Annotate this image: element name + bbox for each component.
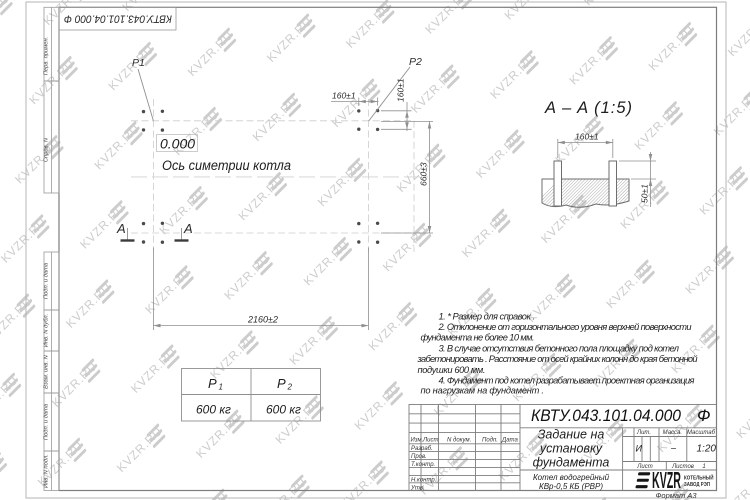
svg-text:Справ. N: Справ. N <box>43 137 49 162</box>
svg-text:KVZR: KVZR <box>652 467 681 493</box>
svg-text:Задание на: Задание на <box>538 428 605 442</box>
svg-text:КОТЕЛЬНЫЙ: КОТЕЛЬНЫЙ <box>684 474 714 482</box>
svg-text:Инв. N дубл.: Инв. N дубл. <box>43 314 49 348</box>
svg-text:Н.контр.: Н.контр. <box>411 478 436 484</box>
svg-text:160±1: 160±1 <box>332 91 356 101</box>
svg-text:3. В случае отсутствия бетонн: 3. В случае отсутствия бетонного пола пл… <box>439 343 680 353</box>
svg-text:Лист: Лист <box>422 438 438 444</box>
svg-text:ЗАВОД РЭП: ЗАВОД РЭП <box>684 482 710 488</box>
svg-text:Масштаб: Масштаб <box>687 430 716 436</box>
svg-text:KVZR.RU: KVZR.RU <box>725 8 750 59</box>
svg-text:KVZR.RU: KVZR.RU <box>12 135 63 186</box>
svg-text:600 кг: 600 кг <box>266 403 301 417</box>
svg-text:P: P <box>208 376 217 391</box>
svg-text:Перв. примен.: Перв. примен. <box>43 37 49 76</box>
svg-text:P1: P1 <box>132 57 145 69</box>
svg-text:50±1: 50±1 <box>640 184 650 203</box>
svg-text:фундамента: фундамента <box>533 456 610 470</box>
svg-text:1: 1 <box>219 383 223 392</box>
svg-text:–: – <box>670 443 677 453</box>
svg-text:по нагрузкам на фундамент .: по нагрузкам на фундамент . <box>421 386 545 396</box>
svg-text:600 кг: 600 кг <box>196 403 231 417</box>
svg-text:подушки 600 мм.: подушки 600 мм. <box>418 365 486 375</box>
svg-text:Ось симетрии котла: Ось симетрии котла <box>162 158 291 173</box>
svg-text:Утв.: Утв. <box>410 486 425 492</box>
svg-text:160±1: 160±1 <box>575 132 599 142</box>
svg-text:КВТУ.043.101.04.000 Ф: КВТУ.043.101.04.000 Ф <box>64 13 172 25</box>
svg-text:Разраб.: Разраб. <box>411 446 433 452</box>
svg-text:0.000: 0.000 <box>160 136 195 152</box>
svg-text:A – A (1:5): A – A (1:5) <box>544 99 633 117</box>
svg-text:Подп. и дата: Подп. и дата <box>43 262 49 299</box>
svg-text:1. * Размер для справок .: 1. * Размер для справок . <box>439 311 536 321</box>
svg-text:A: A <box>116 221 126 236</box>
svg-text:P2: P2 <box>409 56 422 68</box>
svg-text:Т.контр.: Т.контр. <box>411 462 435 468</box>
svg-text:КВТУ.043.101.04.000: КВТУ.043.101.04.000 <box>531 406 681 425</box>
svg-text:И: И <box>636 444 643 454</box>
svg-text:660±3: 660±3 <box>419 162 429 186</box>
svg-text:Дата: Дата <box>501 438 518 444</box>
svg-text:Формат А3: Формат А3 <box>655 491 697 500</box>
svg-text:фундамента не более 10 мм.: фундамента не более 10 мм. <box>421 333 535 343</box>
svg-text:KVZR.RU: KVZR.RU <box>733 390 750 441</box>
svg-text:160±1: 160±1 <box>396 78 406 102</box>
svg-text:Лит.: Лит. <box>636 430 651 436</box>
svg-text:N докум.: N докум. <box>447 438 471 444</box>
svg-text:забетонировать . Расстояние о: забетонировать . Расстояние от осей край… <box>417 354 698 364</box>
svg-text:Пров.: Пров. <box>411 454 427 460</box>
svg-text:2160±2: 2160±2 <box>247 315 278 325</box>
svg-text:KVZR.RU: KVZR.RU <box>0 215 49 266</box>
svg-text:Ф: Ф <box>697 406 711 425</box>
svg-text:2. Отклонение от горизонтальн: 2. Отклонение от горизонтального уровня … <box>438 322 692 332</box>
svg-text:Подп.: Подп. <box>482 438 498 444</box>
svg-text:Инв. N подл.: Инв. N подл. <box>43 454 49 488</box>
svg-text:1: 1 <box>702 464 705 470</box>
svg-text:установку: установку <box>539 442 603 456</box>
svg-text:Котел водогрейный: Котел водогрейный <box>533 473 610 482</box>
svg-text:KVZR.RU: KVZR.RU <box>719 469 750 500</box>
svg-text:A: A <box>183 221 193 236</box>
svg-text:1:20: 1:20 <box>697 444 717 455</box>
svg-text:Лист: Лист <box>636 464 652 470</box>
svg-text:4. Фундамент под котел разраб: 4. Фундамент под котел разрабатывает про… <box>439 376 695 386</box>
svg-text:2: 2 <box>287 383 293 392</box>
svg-text:P: P <box>277 376 286 391</box>
svg-text:Масса: Масса <box>663 430 681 436</box>
svg-text:Подп. и дата: Подп. и дата <box>43 403 49 440</box>
svg-text:Изм.: Изм. <box>411 438 424 444</box>
svg-text:КВр-0,5 КБ (РВР): КВр-0,5 КБ (РВР) <box>539 482 603 491</box>
svg-text:Взам. инв. N: Взам. инв. N <box>43 354 49 389</box>
